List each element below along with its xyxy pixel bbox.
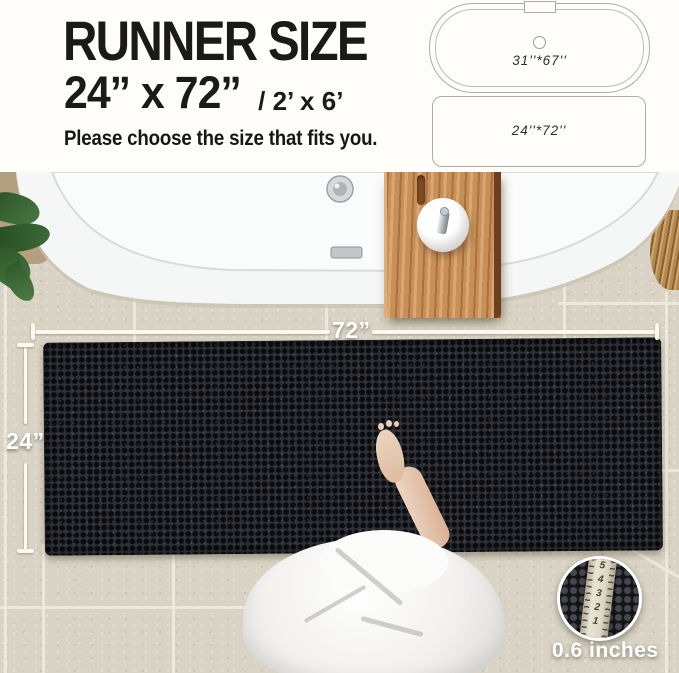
size-primary-text: 24” x 72”	[64, 70, 241, 115]
wood-bark-edge	[494, 172, 501, 318]
bathtub-diagram: 31''*67''	[429, 3, 650, 93]
paper-holder-knob	[440, 207, 449, 216]
height-dimension-tick-top	[17, 343, 34, 347]
bathtub-diagram-faucet-notch	[524, 1, 556, 13]
bathrobe-shoulder	[320, 530, 448, 594]
product-image: RUNNER SIZE 24” x 72” / 2’ x 6’ Please c…	[0, 0, 679, 673]
page-title: RUNNER SIZE	[63, 14, 367, 67]
size-heading: 24” x 72” / 2’ x 6’	[64, 70, 343, 115]
thickness-inset-circle: 5 4 3 2 1	[557, 556, 642, 641]
measuring-tape-icon: 5 4 3 2 1	[578, 556, 617, 641]
toilet-paper-roll	[417, 198, 469, 252]
width-dimension-tick-left	[31, 323, 35, 340]
drain-control-center	[333, 182, 347, 196]
width-dimension-line-right	[372, 330, 656, 334]
toe	[394, 421, 399, 427]
height-dimension-label: 24”	[6, 428, 45, 455]
black-runner-rug	[43, 337, 663, 555]
thickness-label: 0.6 inches	[552, 639, 652, 663]
width-dimension-label: 72”	[332, 317, 371, 344]
size-subtitle: Please choose the size that fits you.	[64, 127, 377, 151]
height-dimension-line-top	[24, 345, 28, 424]
height-dimension-tick-bottom	[17, 549, 34, 553]
size-secondary-text: / 2’ x 6’	[258, 88, 343, 114]
width-dimension-line-left	[33, 330, 330, 334]
drain-control-glint	[335, 184, 340, 189]
bathtub-size-label: 31''*67''	[430, 53, 649, 68]
toe	[386, 420, 392, 427]
runner-size-label: 24''*72''	[433, 123, 645, 138]
overflow-faucet-icon	[331, 247, 362, 258]
toe	[378, 423, 384, 430]
bathtub-diagram-drain-icon	[533, 36, 546, 49]
width-dimension-tick-right	[655, 323, 659, 340]
runner-diagram: 24''*72''	[432, 96, 646, 167]
tray-slot	[417, 175, 425, 205]
bathroom-photo: 72” 24” 5 4 3 2 1	[0, 172, 679, 673]
height-dimension-line-bottom	[24, 463, 28, 551]
